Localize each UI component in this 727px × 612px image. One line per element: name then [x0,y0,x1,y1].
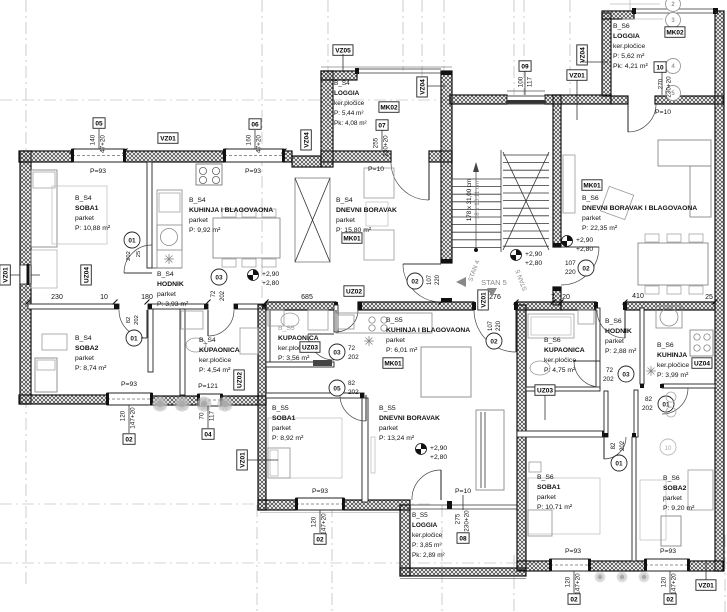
svg-text:+2,80: +2,80 [525,260,542,267]
svg-text:202: 202 [348,354,359,361]
svg-text:120: 120 [119,410,126,421]
svg-text:82: 82 [611,442,617,449]
svg-text:UZ04: UZ04 [83,267,90,283]
svg-text:SOBA1: SOBA1 [272,415,296,422]
svg-text:parket: parket [537,494,556,501]
svg-text:02: 02 [582,265,590,272]
svg-text:ker.pločice: ker.pločice [544,357,576,364]
svg-text:72: 72 [606,367,614,374]
svg-text:P: 3,93 m²: P: 3,93 m² [157,301,189,308]
svg-text:202: 202 [126,251,132,261]
svg-text:02: 02 [411,278,419,285]
svg-text:+2,90: +2,90 [430,445,447,452]
svg-text:VZ04: VZ04 [579,47,586,63]
svg-text:B_S6: B_S6 [582,195,599,202]
svg-text:parket: parket [157,291,176,298]
svg-text:09: 09 [521,63,529,70]
svg-text:UZ02: UZ02 [236,372,243,388]
svg-text:DNEVNI BORAVAK: DNEVNI BORAVAK [379,415,440,422]
svg-text:220: 220 [496,320,502,331]
svg-text:parket: parket [386,337,405,344]
svg-text:Pk: 4,08 m²: Pk: 4,08 m² [334,120,367,127]
svg-text:B_S4: B_S4 [336,197,353,204]
svg-text:MK01: MK01 [583,182,601,189]
svg-text:VZ01: VZ01 [160,135,176,142]
svg-text:120: 120 [660,576,667,587]
svg-text:03: 03 [622,371,630,378]
svg-text:410: 410 [632,293,644,300]
svg-text:MK01: MK01 [384,360,402,367]
svg-text:05: 05 [95,120,103,127]
svg-text:P: 6,01 m²: P: 6,01 m² [386,347,418,354]
svg-text:P: 8,92 m²: P: 8,92 m² [272,435,304,442]
svg-text:P: 10,71 m²: P: 10,71 m² [537,504,573,511]
svg-text:parket: parket [605,338,624,345]
svg-text:47+20: 47+20 [255,135,262,153]
svg-text:B_S6: B_S6 [544,337,561,344]
svg-text:72: 72 [348,345,356,352]
svg-text:UZ04: UZ04 [694,360,710,367]
svg-text:P: 2,88 m²: P: 2,88 m² [605,348,637,355]
svg-text:parket: parket [379,425,398,432]
svg-text:UZ03: UZ03 [537,387,553,394]
svg-text:ker.pločice: ker.pločice [199,357,231,364]
svg-text:275: 275 [454,513,461,524]
svg-text:B_S5: B_S5 [379,405,396,412]
svg-text:02: 02 [490,338,498,345]
svg-text:P: 9,92 m²: P: 9,92 m² [189,227,221,234]
svg-text:P: 13,24 m²: P: 13,24 m² [379,435,415,442]
svg-text:P: 10,88 m²: P: 10,88 m² [75,225,111,232]
svg-text:230: 230 [51,294,63,301]
svg-text:B_S4: B_S4 [157,271,174,278]
svg-text:B_S4: B_S4 [75,335,92,342]
svg-text:Pk: 4,21 m²: Pk: 4,21 m² [613,63,648,70]
svg-text:KUHINJA: KUHINJA [657,352,687,359]
svg-text:+2,80: +2,80 [576,246,593,253]
svg-text:parket: parket [75,355,94,362]
svg-text:B_S5: B_S5 [386,317,403,324]
svg-text:B_S4: B_S4 [189,197,206,204]
svg-text:147+20: 147+20 [320,513,327,535]
svg-text:KUPAONICA: KUPAONICA [278,335,319,342]
svg-text:P=10: P=10 [655,109,671,116]
svg-text:HODNIK: HODNIK [605,328,632,335]
svg-text:B_S6: B_S6 [537,474,554,481]
svg-text:230+20: 230+20 [463,510,470,532]
svg-text:120: 120 [564,576,571,587]
svg-text:P: 9,20 m²: P: 9,20 m² [663,505,695,512]
svg-text:+2,90: +2,90 [525,251,542,258]
svg-text:B_S6: B_S6 [613,23,630,30]
svg-text:107: 107 [488,320,494,331]
svg-text:230+20: 230+20 [382,135,389,157]
svg-text:147+20: 147+20 [574,573,581,595]
svg-text:HODNIK: HODNIK [157,281,184,288]
svg-text:10: 10 [656,64,664,71]
svg-text:230+20: 230+20 [665,76,672,98]
svg-text:VZ01: VZ01 [2,267,9,283]
svg-text:LOGGIA: LOGGIA [613,33,640,40]
svg-text:B_S4: B_S4 [199,337,216,344]
svg-text:P: 4,75 m²: P: 4,75 m² [544,367,576,374]
svg-text:70: 70 [198,412,205,420]
svg-text:UZ02: UZ02 [346,288,362,295]
svg-text:ker.pločice: ker.pločice [412,532,443,539]
svg-text:72: 72 [211,290,217,297]
svg-text:06: 06 [251,121,259,128]
svg-text:107: 107 [427,274,433,285]
svg-text:parket: parket [272,425,291,432]
svg-text:270: 270 [657,78,664,89]
svg-text:25: 25 [136,251,142,257]
svg-text:82: 82 [126,317,132,323]
svg-text:LOGGIA: LOGGIA [412,522,438,529]
svg-text:117: 117 [208,410,215,421]
svg-text:STAN 5: STAN 5 [481,278,507,287]
svg-text:P=93: P=93 [245,168,261,175]
svg-text:02: 02 [316,536,324,543]
svg-text:04: 04 [204,431,212,438]
svg-text:ker.pločice: ker.pločice [657,362,689,369]
svg-text:VZ05: VZ05 [335,47,351,54]
svg-text:VZ01: VZ01 [698,582,714,589]
svg-text:25: 25 [705,294,713,301]
svg-text:B_S6: B_S6 [663,475,680,482]
svg-text:P: 3,85 m²: P: 3,85 m² [412,542,441,549]
svg-text:03: 03 [333,349,341,356]
svg-text:220: 220 [435,274,441,285]
svg-text:LOGGIA: LOGGIA [334,90,360,97]
svg-text:+2,90: +2,90 [262,271,279,278]
svg-text:82: 82 [645,396,653,403]
svg-text:18 x 16,11 cm: 18 x 16,11 cm [474,181,481,219]
svg-text:parket: parket [75,215,94,222]
svg-text:202: 202 [603,376,614,383]
svg-text:MK02: MK02 [666,29,684,36]
svg-text:107: 107 [565,260,576,267]
svg-text:B_S5: B_S5 [278,325,295,332]
svg-text:KUHINJA I BLAGOVAONA: KUHINJA I BLAGOVAONA [386,327,470,334]
svg-text:DNEVNI BORAVAK: DNEVNI BORAVAK [336,207,397,214]
svg-text:82: 82 [348,380,356,387]
svg-text:P: 5,44 m²: P: 5,44 m² [334,110,363,117]
svg-text:parket: parket [663,495,682,502]
svg-text:120: 120 [310,516,317,527]
svg-text:P=93: P=93 [121,381,137,388]
svg-text:VZ04: VZ04 [419,79,426,95]
svg-text:117: 117 [526,76,533,87]
svg-text:08: 08 [459,535,467,542]
svg-text:202: 202 [134,315,140,325]
svg-text:P=93: P=93 [565,548,581,555]
svg-text:178 x 31,00 cm: 178 x 31,00 cm [466,179,473,221]
svg-text:140: 140 [89,134,96,145]
svg-text:ker.pločice: ker.pločice [334,100,365,107]
svg-text:parket: parket [582,215,601,222]
svg-text:10: 10 [100,294,108,301]
svg-text:P=93: P=93 [90,168,106,175]
svg-text:KUPAONICA: KUPAONICA [544,347,585,354]
svg-text:202: 202 [620,440,626,451]
svg-text:VZ01: VZ01 [239,452,246,468]
svg-text:SOBA1: SOBA1 [75,205,99,212]
svg-text:685: 685 [301,294,313,301]
svg-text:+2,80: +2,80 [430,454,447,461]
svg-text:255: 255 [372,137,379,148]
svg-text:VZ01: VZ01 [569,72,585,79]
svg-text:02: 02 [666,596,674,603]
svg-text:+2,90: +2,90 [576,237,593,244]
svg-text:P: 4,54 m²: P: 4,54 m² [199,367,231,374]
svg-text:VZ01: VZ01 [480,292,487,308]
svg-text:07: 07 [378,122,386,129]
svg-text:02: 02 [570,596,578,603]
svg-text:SOBA2: SOBA2 [663,485,687,492]
svg-text:P=93: P=93 [312,488,328,495]
svg-text:MK01: MK01 [343,235,361,242]
svg-text:01: 01 [130,335,138,342]
svg-text:202: 202 [642,405,653,412]
svg-text:Pk: 2,89 m²: Pk: 2,89 m² [412,552,445,559]
svg-text:parket: parket [189,217,208,224]
svg-text:202: 202 [220,290,226,301]
svg-text:P=10: P=10 [455,488,471,495]
svg-text:100: 100 [517,76,524,87]
svg-text:P=10: P=10 [368,166,384,173]
svg-text:SOBA2: SOBA2 [75,345,99,352]
svg-text:P: 8,74 m²: P: 8,74 m² [75,365,107,372]
svg-text:parket: parket [336,217,355,224]
svg-text:KUHINJA I BLAGOVAONA: KUHINJA I BLAGOVAONA [189,207,273,214]
svg-text:DNEVNI BORAVAK I BLAGOVAONA: DNEVNI BORAVAK I BLAGOVAONA [582,205,697,212]
svg-text:180: 180 [141,294,153,301]
svg-text:10: 10 [665,446,672,452]
svg-text:P: 22,35 m²: P: 22,35 m² [582,225,618,232]
svg-text:UZ03: UZ03 [302,344,318,351]
svg-text:B_S6: B_S6 [657,342,674,349]
svg-text:B_S5: B_S5 [412,512,428,519]
svg-text:VZ04: VZ04 [303,132,310,148]
svg-text:B_S4: B_S4 [75,195,92,202]
svg-text:B_S6: B_S6 [605,318,622,325]
svg-text:01: 01 [615,460,623,467]
svg-text:01: 01 [128,237,136,244]
svg-text:202: 202 [348,389,359,396]
svg-text:SOBA1: SOBA1 [537,484,561,491]
svg-text:+2,80: +2,80 [262,280,279,287]
svg-text:03: 03 [215,274,223,281]
svg-text:B_S4: B_S4 [334,80,350,87]
svg-text:B_S5: B_S5 [272,405,289,412]
svg-text:KUPAONICA: KUPAONICA [199,347,240,354]
svg-text:47+20: 47+20 [99,135,106,153]
svg-text:02: 02 [125,436,133,443]
svg-text:P=93: P=93 [660,548,676,555]
svg-text:P=121: P=121 [198,383,218,390]
svg-text:P: 3,56 m²: P: 3,56 m² [278,355,310,362]
svg-text:P: 5,62 m²: P: 5,62 m² [613,53,645,60]
svg-text:05: 05 [333,385,341,392]
svg-text:147+20: 147+20 [670,573,677,595]
svg-text:MK02: MK02 [380,104,398,111]
svg-text:P: 3,99 m²: P: 3,99 m² [657,372,689,379]
svg-text:ker.pločice: ker.pločice [613,43,645,50]
svg-text:220: 220 [565,269,576,276]
svg-text:160: 160 [245,134,252,145]
svg-text:147+20: 147+20 [129,407,136,429]
